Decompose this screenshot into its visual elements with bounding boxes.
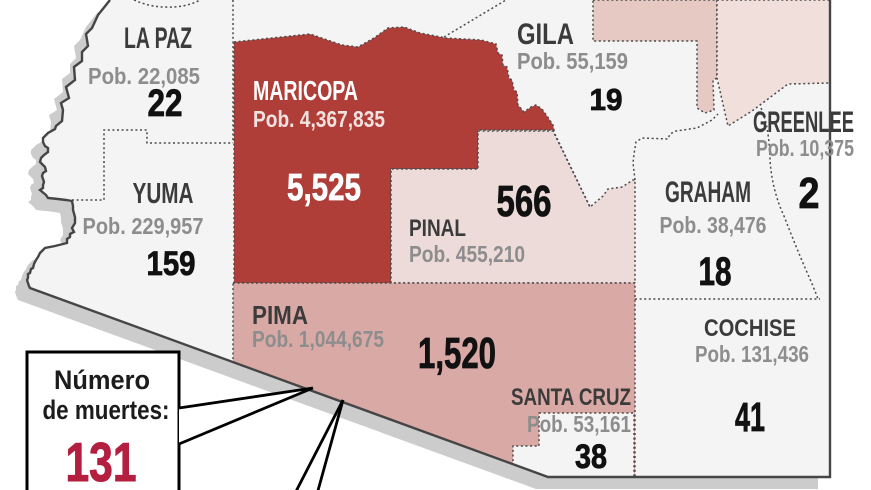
svg-text:2: 2 — [799, 169, 820, 218]
svg-text:PINAL: PINAL — [409, 215, 466, 242]
svg-text:Pob. 10,375: Pob. 10,375 — [756, 135, 854, 161]
svg-text:de muertes:: de muertes: — [43, 395, 170, 425]
svg-text:GILA: GILA — [517, 18, 574, 51]
svg-text:Pob. 38,476: Pob. 38,476 — [660, 212, 767, 238]
svg-text:41: 41 — [735, 394, 765, 440]
svg-text:Número: Número — [54, 365, 150, 395]
svg-text:GRAHAM: GRAHAM — [665, 176, 751, 209]
svg-text:Pob. 455,210: Pob. 455,210 — [409, 241, 525, 267]
svg-text:YUMA: YUMA — [133, 178, 194, 210]
svg-text:566: 566 — [497, 177, 552, 226]
svg-text:5,525: 5,525 — [287, 167, 361, 209]
svg-text:Pob. 53,161: Pob. 53,161 — [527, 411, 631, 437]
svg-text:38: 38 — [575, 438, 607, 476]
svg-text:22: 22 — [148, 83, 183, 125]
svg-text:19: 19 — [590, 82, 623, 117]
svg-text:Pob. 22,085: Pob. 22,085 — [88, 63, 200, 89]
svg-text:1,520: 1,520 — [418, 329, 496, 378]
svg-text:18: 18 — [699, 250, 732, 294]
svg-text:Pob. 131,436: Pob. 131,436 — [695, 341, 809, 367]
svg-text:Pob. 1,044,675: Pob. 1,044,675 — [252, 326, 384, 352]
svg-text:MARICOPA: MARICOPA — [253, 75, 358, 106]
svg-text:Pob. 4,367,835: Pob. 4,367,835 — [253, 106, 385, 132]
svg-text:Pob. 229,957: Pob. 229,957 — [83, 213, 204, 239]
svg-text:COCHISE: COCHISE — [704, 315, 796, 342]
svg-text:Pob. 55,159: Pob. 55,159 — [517, 48, 628, 74]
svg-text:LA PAZ: LA PAZ — [124, 22, 192, 55]
svg-text:SANTA CRUZ: SANTA CRUZ — [511, 384, 631, 411]
svg-text:159: 159 — [147, 245, 196, 283]
svg-text:131: 131 — [66, 431, 137, 490]
